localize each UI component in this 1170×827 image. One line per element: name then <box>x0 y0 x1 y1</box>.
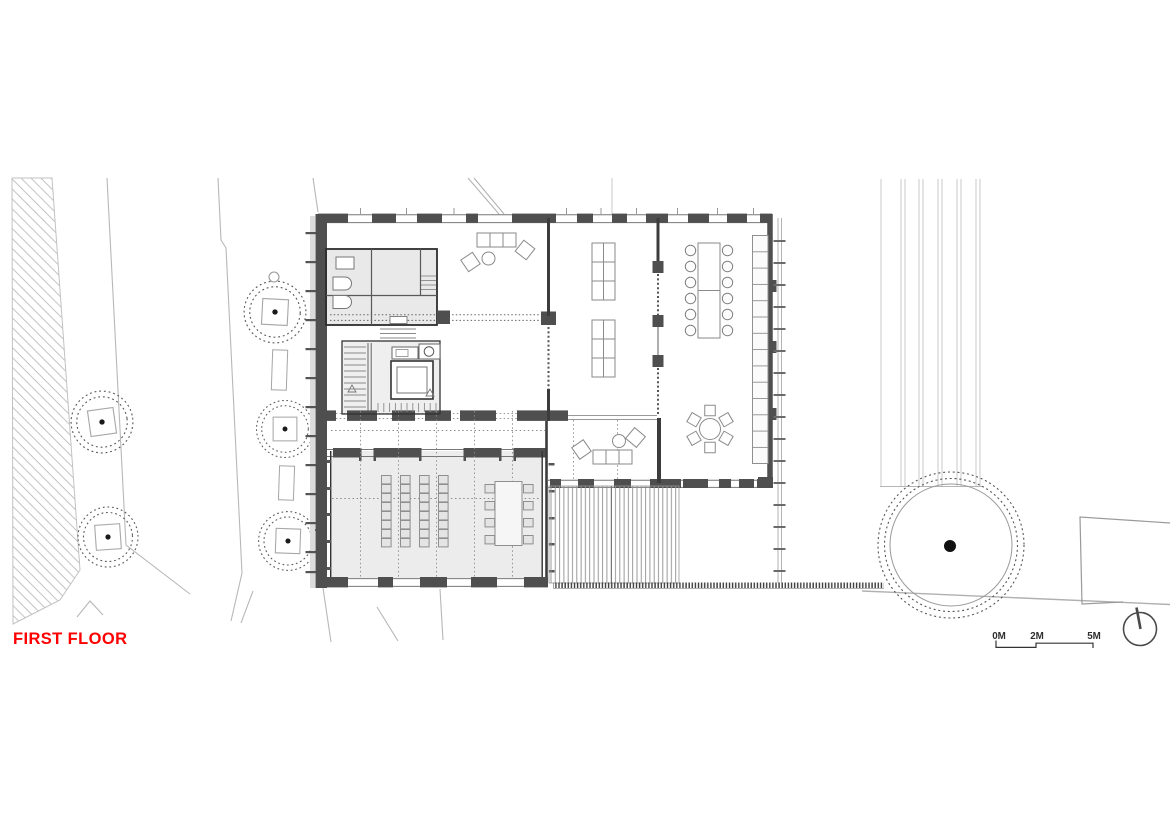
chair <box>687 413 701 427</box>
seminar-table <box>495 482 522 546</box>
bollard-icon <box>269 272 279 282</box>
lounge-seating-north <box>461 233 535 272</box>
floor-plan-page: 0M 2M 5M FIRST FLOOR <box>0 0 1170 827</box>
west-wall <box>306 214 328 588</box>
toilet <box>333 296 352 309</box>
toilet <box>333 277 352 290</box>
path-tick-band <box>553 583 884 589</box>
bench <box>278 466 294 501</box>
chair <box>719 413 733 427</box>
floor-plan-canvas: 0M 2M 5M <box>0 0 1170 827</box>
coffee-table <box>613 435 626 448</box>
washbasin <box>336 257 354 269</box>
deck-terrace <box>549 486 884 588</box>
building <box>306 208 786 588</box>
chair <box>705 405 716 416</box>
chair <box>719 431 733 445</box>
east-facade-screen <box>774 218 786 583</box>
lounge-chair <box>572 440 591 459</box>
conference-table-group <box>685 243 732 338</box>
chair <box>687 431 701 445</box>
workshop-tables <box>592 243 615 377</box>
floor-plan-title: FIRST FLOOR <box>13 630 127 649</box>
coffee-table <box>482 252 495 265</box>
scale-label-2m: 2M <box>1030 631 1044 642</box>
street-trees <box>67 272 318 571</box>
sink-icon <box>424 347 434 357</box>
tree-icon <box>258 511 319 572</box>
scale-bar: 0M 2M 5M <box>992 631 1101 648</box>
bench <box>271 350 287 390</box>
tree-icon <box>67 387 137 457</box>
partition-pocket <box>437 311 450 325</box>
wall-shelving <box>753 236 769 464</box>
tree-icon <box>243 280 308 345</box>
lounge-chair <box>461 252 480 271</box>
scale-label-5m: 5M <box>1087 631 1101 642</box>
north-wall <box>318 208 772 223</box>
tree-icon <box>257 401 314 458</box>
tree-icon <box>76 505 140 569</box>
glazed-partition <box>653 218 664 483</box>
corridor-walls <box>318 410 657 421</box>
chair <box>705 442 716 453</box>
round-table-group <box>687 405 733 453</box>
round-table <box>700 419 721 440</box>
north-arrow-icon <box>1124 608 1157 646</box>
adjacent-building-hatch <box>12 178 80 624</box>
lounge-seating-south <box>572 428 646 464</box>
scale-label-0m: 0M <box>992 631 1006 642</box>
lounge-chair <box>515 240 535 260</box>
lounge-chair <box>626 428 646 448</box>
large-tree-icon <box>878 472 1024 618</box>
